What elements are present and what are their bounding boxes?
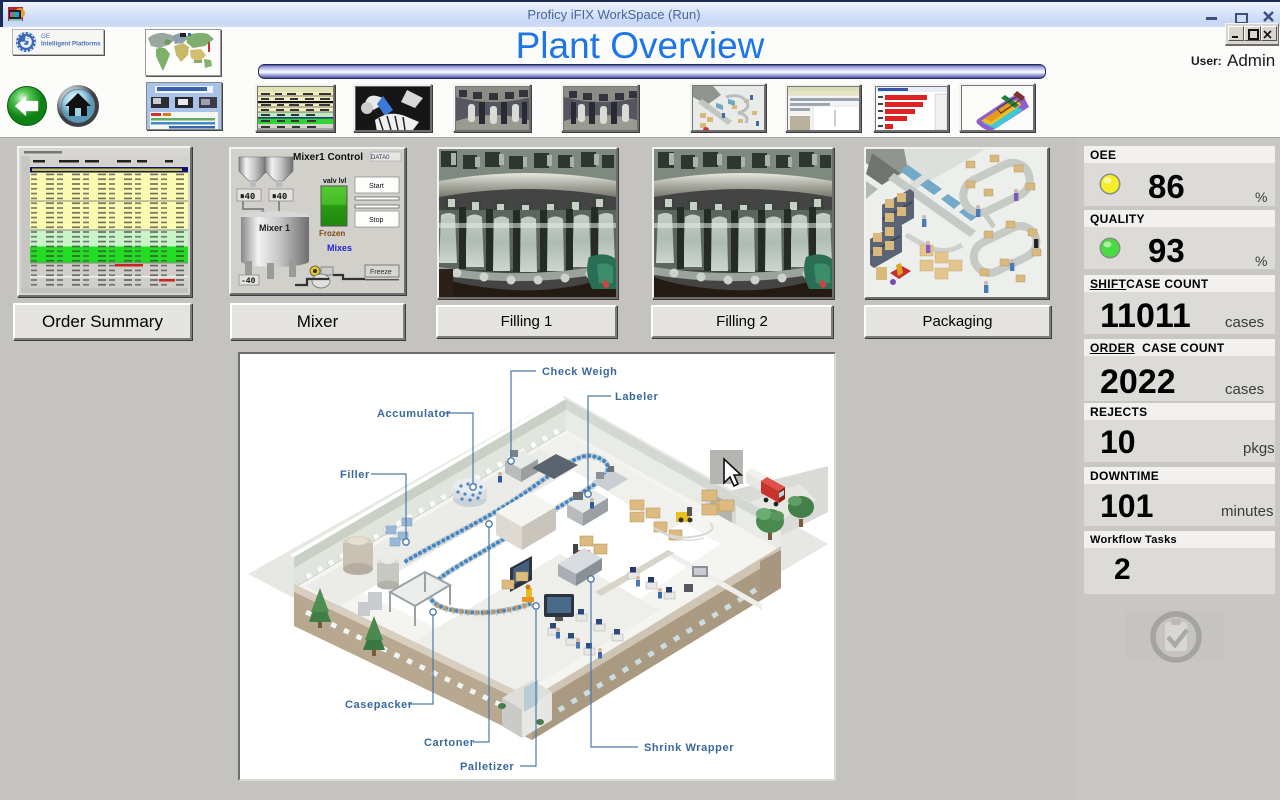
svg-text:Palletizer: Palletizer (460, 761, 514, 773)
svg-text:Mixes: Mixes (327, 243, 352, 253)
svg-text:Shrink Wrapper: Shrink Wrapper (644, 742, 734, 754)
svg-text:Check Weigh: Check Weigh (542, 366, 617, 378)
svg-text:-40: -40 (241, 277, 256, 286)
svg-text:Frozen: Frozen (319, 229, 345, 238)
svg-text:DATA0: DATA0 (371, 155, 390, 161)
svg-text:valv lvl: valv lvl (323, 178, 346, 185)
svg-text:Start: Start (369, 183, 384, 190)
svg-text:⏸40: ⏸40 (240, 192, 255, 202)
svg-text:Stop: Stop (369, 217, 384, 224)
svg-text:⏸40: ⏸40 (272, 192, 287, 202)
svg-text:Mixer 1: Mixer 1 (259, 223, 290, 233)
svg-text:Cartoner: Cartoner (424, 737, 475, 749)
svg-text:Freeze: Freeze (370, 269, 392, 276)
svg-text:Mixer1 Control: Mixer1 Control (293, 152, 363, 163)
svg-text:Filler: Filler (340, 469, 370, 481)
svg-text:Accumulator: Accumulator (377, 408, 451, 420)
svg-text:Labeler: Labeler (615, 391, 658, 403)
svg-text:Casepacker: Casepacker (345, 699, 413, 711)
